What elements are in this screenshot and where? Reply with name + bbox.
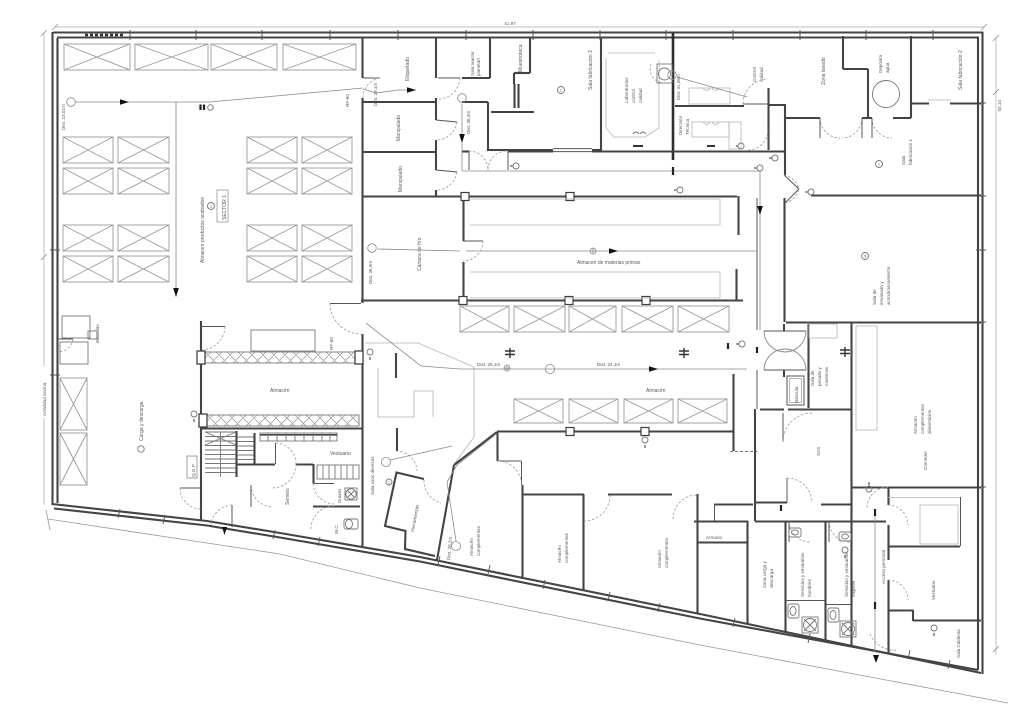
svg-text:Carga y descarga: Carga y descarga (139, 401, 145, 441)
svg-text:Sala fabricación 2: Sala fabricación 2 (958, 50, 964, 90)
svg-text:Almacén: Almacén (270, 388, 290, 394)
svg-text:Actividad vecina: Actividad vecina (42, 382, 47, 416)
svg-text:Zona carga y: Zona carga y (762, 560, 767, 588)
svg-text:hombres: hombres (807, 578, 812, 597)
svg-text:Q.G.P: Q.G.P (191, 464, 196, 477)
svg-text:Depósito: Depósito (878, 54, 883, 73)
svg-text:Dist. 29,1m: Dist. 29,1m (373, 83, 378, 106)
svg-text:Vestuario: Vestuario (330, 451, 351, 457)
svg-text:RF-60: RF-60 (345, 94, 350, 107)
svg-text:Etiquetado: Etiquetado (405, 57, 411, 81)
svg-text:Dutxes: Dutxes (337, 488, 342, 503)
svg-text:Dist. 38,3m: Dist. 38,3m (466, 111, 471, 134)
svg-text:Sala fabricación 3: Sala fabricación 3 (588, 50, 594, 90)
svg-text:Comedor: Comedor (923, 451, 928, 470)
svg-text:pesado y: pesado y (817, 367, 822, 386)
svg-text:Almacén: Almacén (557, 545, 562, 563)
svg-text:Sala de: Sala de (810, 370, 815, 386)
svg-text:Dist. 24,1m: Dist. 24,1m (597, 362, 620, 367)
svg-text:complementos: complementos (564, 532, 569, 563)
svg-text:Cámara de frío: Cámara de frío (417, 237, 423, 271)
svg-text:Zona lavado: Zona lavado (821, 57, 827, 85)
svg-text:SECTOR 1: SECTOR 1 (222, 195, 228, 220)
svg-text:Laboratorios: Laboratorios (624, 77, 629, 103)
svg-text:W.C.: W.C. (334, 524, 339, 534)
svg-text:Manipulado: Manipulado (398, 166, 404, 192)
svg-text:Dist. 36,9m: Dist. 36,9m (368, 261, 373, 284)
svg-text:muestras: muestras (824, 366, 829, 386)
svg-text:Técnica: Técnica (685, 118, 690, 135)
svg-text:complementos: complementos (664, 537, 669, 568)
svg-text:Sala Calderas: Sala Calderas (956, 628, 961, 658)
svg-text:Dirección: Dirección (678, 115, 683, 135)
svg-text:agua: agua (885, 62, 890, 73)
svg-text:50,10: 50,10 (997, 100, 1002, 112)
svg-text:control: control (631, 89, 636, 103)
svg-text:alimenticios: alimenticios (927, 409, 932, 434)
svg-text:Manipulado: Manipulado (396, 115, 402, 141)
svg-text:envasado y: envasado y (879, 281, 884, 305)
svg-text:Almacen de materias primas: Almacen de materias primas (577, 260, 641, 266)
svg-text:calidad: calidad (638, 88, 643, 103)
svg-text:Servicios y vestuarios: Servicios y vestuarios (800, 552, 805, 597)
svg-text:Armario: Armario (706, 535, 723, 540)
svg-text:Almacen productos acabados: Almacen productos acabados (200, 197, 206, 263)
svg-text:Almacén: Almacén (646, 388, 666, 394)
svg-text:Acceso personal: Acceso personal (881, 550, 886, 584)
svg-text:descarga: descarga (769, 569, 774, 588)
svg-text:Almacén: Almacén (913, 416, 918, 434)
svg-text:Dist. 25,1m: Dist. 25,1m (477, 362, 500, 367)
svg-text:1: 1 (388, 481, 390, 485)
svg-text:mujeres: mujeres (851, 580, 856, 597)
svg-text:Dist. 23,01m: Dist. 23,01m (61, 104, 66, 130)
svg-text:Almacén: Almacén (469, 538, 474, 556)
svg-text:Servicios y vestuarios: Servicios y vestuarios (844, 552, 849, 597)
svg-text:Dist. 31,06m: Dist. 31,06m (676, 74, 681, 100)
svg-text:Almacén: Almacén (657, 550, 662, 568)
svg-text:Sala de: Sala de (872, 289, 877, 305)
svg-text:acondicionamiento: acondicionamiento (886, 266, 891, 305)
svg-text:Vestuario: Vestuario (931, 580, 936, 600)
svg-text:Muestroteca: Muestroteca (518, 44, 524, 72)
svg-text:Serveis: Serveis (285, 488, 291, 505)
svg-text:Básculas: Básculas (95, 324, 100, 343)
svg-text:RF-60: RF-60 (329, 337, 334, 350)
svg-text:planetari: planetari (476, 58, 481, 76)
svg-text:Sala usos diversos: Sala usos diversos (370, 456, 375, 495)
svg-text:SAS: SAS (816, 447, 821, 456)
svg-text:Sala reactor: Sala reactor (470, 51, 475, 76)
svg-text:41,97: 41,97 (504, 21, 516, 26)
svg-text:complementos: complementos (476, 525, 481, 556)
svg-text:Sala: Sala (901, 155, 906, 165)
svg-text:Control: Control (752, 67, 757, 82)
svg-text:fabricación 1: fabricación 1 (908, 139, 913, 165)
svg-text:Báscula: Báscula (794, 386, 799, 403)
svg-text:complementos: complementos (920, 403, 925, 434)
